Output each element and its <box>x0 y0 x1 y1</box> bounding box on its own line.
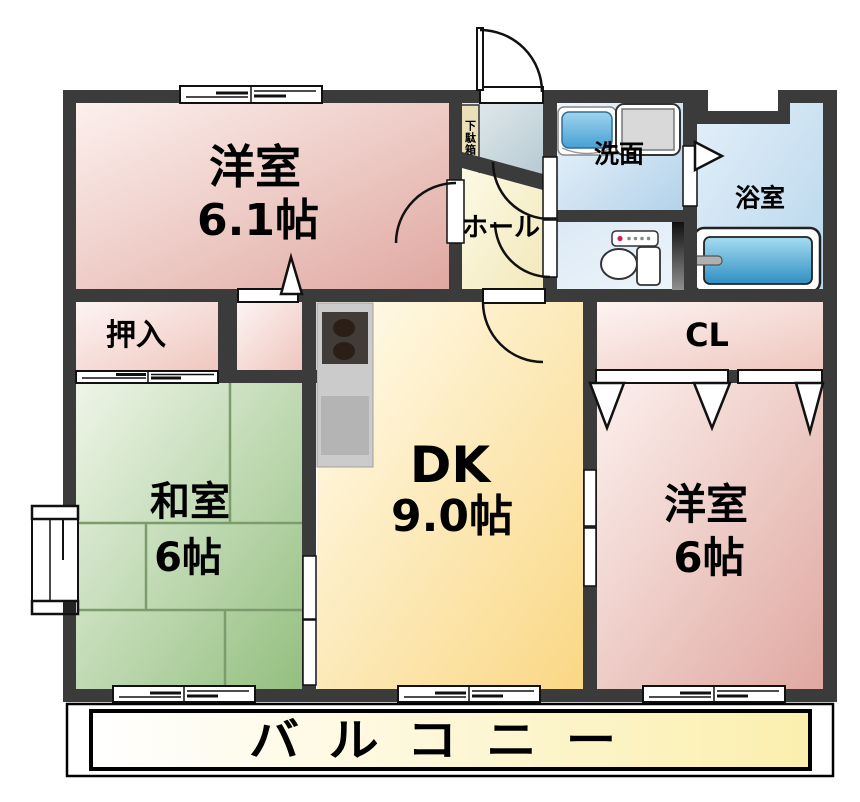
bathtub-icon <box>676 228 820 292</box>
small-closet-floor <box>237 302 302 370</box>
room-size-dk: 9.0帖 <box>391 495 513 539</box>
balcony-label: バルコニー <box>249 718 646 763</box>
window-bottom-western2 <box>643 686 785 702</box>
room-size-western-room-2: 6帖 <box>673 537 744 579</box>
floorplan-drawing <box>0 0 860 802</box>
room-label-dk: DK <box>410 440 490 490</box>
fusuma-oshiire <box>76 371 218 383</box>
room-size-western-room-1: 6.1帖 <box>197 199 319 243</box>
window-bottom-washitsu <box>113 686 255 702</box>
shoe-cabinet-label: 下駄箱 <box>465 120 476 156</box>
plumbing-duct <box>672 222 684 290</box>
sliding-door-dk-western2 <box>584 470 596 586</box>
room-label-oshiire: 押入 <box>106 321 166 351</box>
window-left-washitsu <box>32 506 78 614</box>
room-label-cl: CL <box>685 319 729 351</box>
sliding-door-washitsu-dk <box>303 556 316 685</box>
room-label-washroom: 洗面 <box>594 142 644 167</box>
entrance-door <box>477 28 543 103</box>
kitchen-counter-icon <box>317 303 373 467</box>
room-label-bathroom: 浴室 <box>735 186 785 211</box>
room-label-japanese-room: 和室 <box>150 482 230 522</box>
window-top <box>180 86 322 103</box>
room-label-western-room-1: 洋室 <box>209 144 301 190</box>
floorplan-canvas: 洋室 6.1帖 押入 和室 6帖 DK 9.0帖 洋室 6帖 CL 洗面 浴室 … <box>0 0 860 802</box>
room-label-hall: ホール <box>462 215 540 241</box>
room-size-japanese-room: 6帖 <box>154 538 222 578</box>
window-bottom-dk <box>398 686 540 702</box>
room-label-western-room-2: 洋室 <box>664 484 748 526</box>
